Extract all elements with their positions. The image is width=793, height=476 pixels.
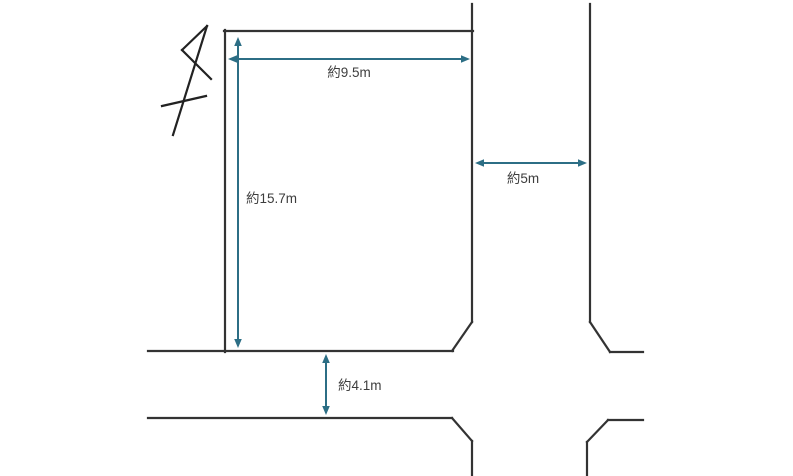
site-plan: 約9.5m約15.7m約5m約4.1m	[0, 0, 793, 476]
dimension-label: 約9.5m	[327, 65, 371, 80]
plan-background	[0, 0, 793, 476]
dimension-label: 約4.1m	[338, 378, 382, 393]
dimension-label: 約5m	[507, 171, 539, 186]
site-plan-svg: 約9.5m約15.7m約5m約4.1m	[0, 0, 793, 476]
dimension-label: 約15.7m	[246, 191, 297, 206]
